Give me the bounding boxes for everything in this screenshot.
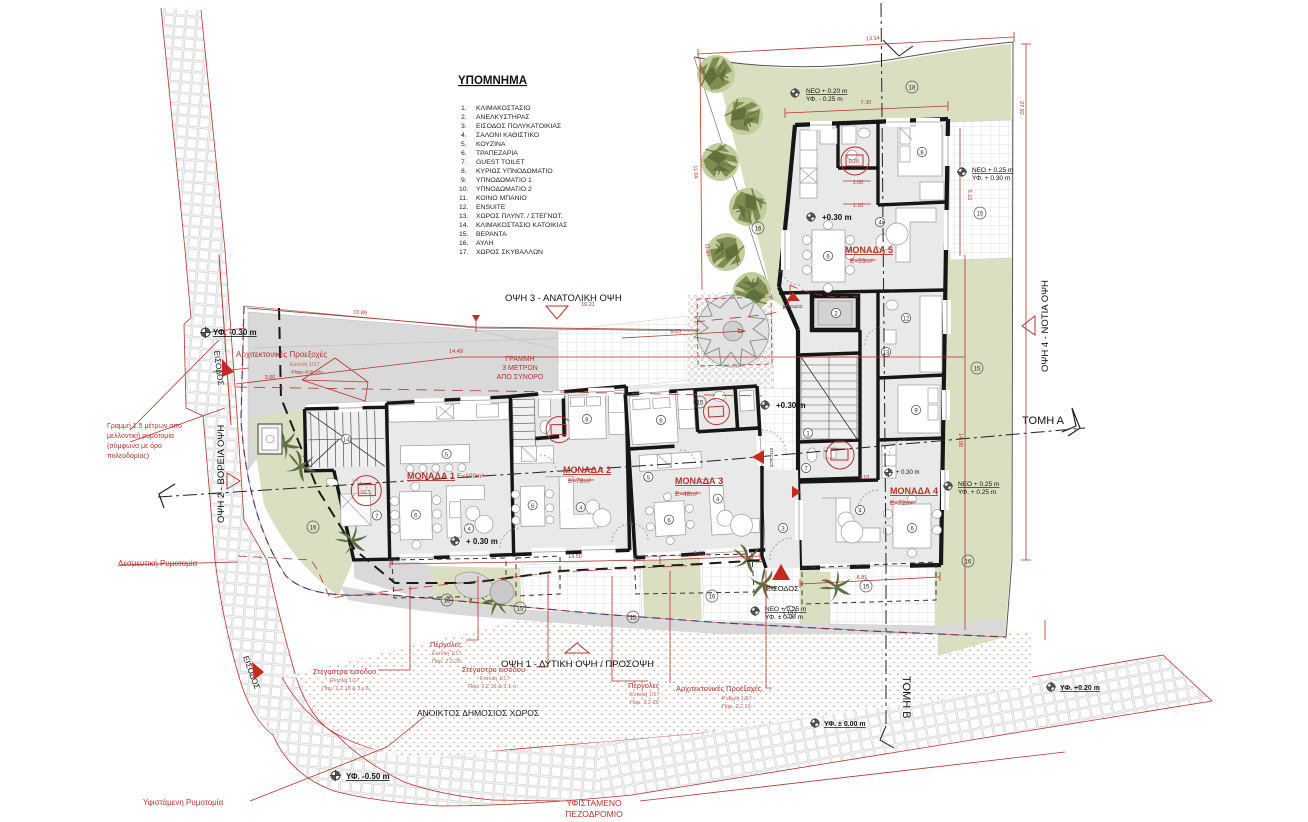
svg-text:ΧΩΡΟΣ ΠΛΥΝΤ. / ΣΤΕΓΝΩΤ.: ΧΩΡΟΣ ΠΛΥΝΤ. / ΣΤΕΓΝΩΤ. (476, 213, 563, 220)
svg-text:Δεσμευτική Ρυμοτομία: Δεσμευτική Ρυμοτομία (118, 559, 198, 568)
svg-text:ΝΕΟ + 0.25 m: ΝΕΟ + 0.25 m (958, 481, 999, 488)
svg-text:ΤΡΑΠΕΖΑΡΙΑ: ΤΡΑΠΕΖΑΡΙΑ (476, 150, 518, 157)
svg-text:1.: 1. (461, 105, 467, 112)
svg-text:Εντολή 1/17: Εντολή 1/17 (432, 650, 462, 657)
svg-text:Εντολή 1/17: Εντολή 1/17 (290, 361, 320, 368)
svg-text:ΚΟΥΖΙΝΑ: ΚΟΥΖΙΝΑ (476, 141, 506, 148)
svg-text:ΥΦ. ± 0.00 m: ΥΦ. ± 0.00 m (765, 614, 803, 621)
svg-text:+ 0.30 m: + 0.30 m (896, 470, 920, 476)
svg-text:ΕΙΣΟΔΟΣ: ΕΙΣΟΔΟΣ (783, 304, 803, 309)
svg-text:ΜΟΝΑΔΑ 1: ΜΟΝΑΔΑ 1 (407, 471, 455, 481)
svg-text:9.05: 9.05 (670, 329, 681, 336)
svg-text:(σύμφωνα με όρο: (σύμφωνα με όρο (107, 442, 162, 450)
svg-text:ΑΠΟ ΣΥΝΟΡΟ: ΑΠΟ ΣΥΝΟΡΟ (497, 374, 544, 381)
svg-text:14.08: 14.08 (957, 433, 963, 447)
svg-text:5.15: 5.15 (966, 190, 972, 201)
svg-text:17.: 17. (459, 249, 469, 256)
svg-text:Ρυθμ/η 1/17: Ρυθμ/η 1/17 (722, 696, 752, 702)
svg-text:ΟΨΗ 2 - ΒΟΡΕΙΑ ΟΨΗ: ΟΨΗ 2 - ΒΟΡΕΙΑ ΟΨΗ (216, 425, 227, 523)
svg-text:ΥΦ. +0.20 m: ΥΦ. +0.20 m (1060, 685, 1100, 692)
svg-text:12.: 12. (459, 204, 469, 211)
svg-text:Παρ. 2.2.19: Παρ. 2.2.19 (722, 704, 751, 710)
svg-text:ΝΕΟ + 0.25 m: ΝΕΟ + 0.25 m (972, 167, 1013, 174)
svg-text:Υφιστάμενη Ρυμοτομία: Υφιστάμενη Ρυμοτομία (143, 798, 224, 807)
svg-text:14.50: 14.50 (568, 554, 582, 560)
svg-text:ΒΕΡΑΝΤΑ: ΒΕΡΑΝΤΑ (476, 231, 507, 238)
svg-text:15: 15 (787, 611, 794, 617)
svg-text:ΜΟΝΑΔΑ 4: ΜΟΝΑΔΑ 4 (890, 486, 938, 496)
svg-text:Ε=78m²: Ε=78m² (568, 478, 592, 485)
svg-text:ΥΠΟΜΝΗΜΑ: ΥΠΟΜΝΗΜΑ (458, 75, 527, 87)
svg-text:ΕΙΣΟΔΟΣ: ΕΙΣΟΔΟΣ (766, 584, 799, 593)
svg-text:16: 16 (310, 526, 317, 532)
svg-text:18: 18 (909, 86, 916, 92)
svg-text:15: 15 (974, 367, 981, 373)
svg-text:Εντολή 1/17: Εντολή 1/17 (480, 675, 510, 682)
svg-text:ΕΙΣΟΔΟΣ ΠΟΛΥΚΑΤΟΙΚΙΑΣ: ΕΙΣΟΔΟΣ ΠΟΛΥΚΑΤΟΙΚΙΑΣ (476, 123, 561, 130)
svg-text:ΧΩΡΟΣ ΣΚΥΒΑΛΛΩΝ: ΧΩΡΟΣ ΣΚΥΒΑΛΛΩΝ (476, 249, 543, 256)
svg-text:3.: 3. (461, 123, 467, 130)
svg-text:7.: 7. (461, 159, 467, 166)
svg-text:4.: 4. (461, 132, 467, 139)
svg-text:μελλοντική ρυμοτομία: μελλοντική ρυμοτομία (107, 432, 174, 440)
svg-text:ΑΝΕΛΚΥΣΤΗΡΑΣ: ΑΝΕΛΚΥΣΤΗΡΑΣ (476, 114, 530, 121)
svg-text:ΝΕΟ + 0.20 m: ΝΕΟ + 0.20 m (806, 88, 847, 95)
svg-text:16: 16 (755, 227, 762, 233)
svg-text:15: 15 (977, 212, 984, 218)
svg-text:Πέργολες: Πέργολες (430, 640, 462, 649)
svg-text:11.07: 11.07 (704, 243, 711, 257)
svg-text:5.: 5. (461, 141, 467, 148)
svg-text:16: 16 (709, 595, 716, 601)
svg-text:ΑΥΛΗ: ΑΥΛΗ (476, 240, 494, 247)
svg-text:10.: 10. (459, 186, 469, 193)
svg-text:15: 15 (863, 585, 870, 591)
svg-text:Παρ. 2.2.16 & 3.1-α: Παρ. 2.2.16 & 3.1-α (468, 684, 517, 690)
svg-text:ΑΝΟΙΚΤΟΣ ΔΗΜΟΣΙΟΣ ΧΩΡΟΣ: ΑΝΟΙΚΤΟΣ ΔΗΜΟΣΙΟΣ ΧΩΡΟΣ (417, 708, 539, 718)
svg-text:+ 0.30 m: + 0.30 m (466, 537, 498, 546)
svg-text:ΥΦ. -0.30 m: ΥΦ. -0.30 m (213, 328, 257, 337)
svg-text:ΜΟΝΑΔΑ 5: ΜΟΝΑΔΑ 5 (845, 245, 893, 255)
svg-text:ΟΨΗ 4 - ΝΟΤΙΑ ΟΨΗ: ΟΨΗ 4 - ΝΟΤΙΑ ΟΨΗ (1040, 280, 1051, 372)
svg-text:ΚΥΡΙΩΣ ΥΠΝΟΔΩΜΑΤΙΟ: ΚΥΡΙΩΣ ΥΠΝΟΔΩΜΑΤΙΟ (476, 168, 553, 175)
svg-text:15: 15 (630, 616, 637, 622)
svg-text:Παρ. 2.2-20: Παρ. 2.2-20 (630, 700, 659, 706)
svg-text:Ε=53m²: Ε=53m² (850, 258, 874, 265)
svg-text:14.49: 14.49 (449, 349, 463, 355)
svg-text:9.: 9. (461, 177, 467, 184)
svg-text:ΥΦ. + 0.25 m: ΥΦ. + 0.25 m (958, 489, 996, 496)
svg-text:Αρχιτεκτονικές Προεξοχές: Αρχιτεκτονικές Προεξοχές (236, 350, 327, 359)
svg-text:14: 14 (343, 437, 350, 443)
svg-text:ΠΕΖΟΔΡΟΜΙΟ: ΠΕΖΟΔΡΟΜΙΟ (565, 809, 623, 819)
svg-text:Γραμμή 1.5 μέτρων απο: Γραμμή 1.5 μέτρων απο (107, 422, 182, 430)
svg-text:8.: 8. (461, 168, 467, 175)
svg-text:Στέγαστρα εισόδου: Στέγαστρα εισόδου (313, 667, 376, 676)
svg-text:0.25: 0.25 (849, 159, 859, 165)
svg-text:16: 16 (444, 599, 451, 605)
svg-text:Στέγαστρο εισόδου: Στέγαστρο εισόδου (462, 665, 525, 674)
svg-text:27.92: 27.92 (1018, 101, 1024, 115)
svg-text:ΥΦ. ± 0.00 m: ΥΦ. ± 0.00 m (824, 721, 866, 728)
svg-text:Εντολή 1/17: Εντολή 1/17 (630, 691, 660, 698)
svg-text:ΚΛΙΜΑΚΟΣΤΑΣΙΟ ΚΑΤΟΙΚΙΑΣ: ΚΛΙΜΑΚΟΣΤΑΣΙΟ ΚΑΤΟΙΚΙΑΣ (476, 222, 567, 229)
svg-text:ΥΦ. -0.50 m: ΥΦ. -0.50 m (346, 772, 390, 781)
svg-text:Παρ. 2.2-20: Παρ. 2.2-20 (432, 659, 461, 665)
svg-text:GUEST TOILET: GUEST TOILET (476, 159, 525, 166)
svg-text:πολεοδομίας): πολεοδομίας) (107, 452, 149, 460)
svg-text:16: 16 (965, 560, 972, 566)
svg-text:ΥΦ. - 0.25 m: ΥΦ. - 0.25 m (806, 96, 843, 103)
svg-text:1.10: 1.10 (859, 475, 870, 481)
svg-text:6.: 6. (461, 150, 467, 157)
svg-text:Ε=109m²: Ε=109m² (457, 473, 484, 480)
svg-text:ΚΟΙΝΟ ΜΠΑΝΙΟ: ΚΟΙΝΟ ΜΠΑΝΙΟ (476, 195, 527, 202)
svg-text:Ε=72m²: Ε=72m² (890, 500, 914, 507)
svg-text:ΥΦ. + 0.30 m: ΥΦ. + 0.30 m (972, 175, 1010, 182)
svg-text:14.: 14. (459, 222, 469, 229)
svg-text:ΚΛΙΜΑΚΟΣΤΑΣΙΟ: ΚΛΙΜΑΚΟΣΤΑΣΙΟ (476, 105, 531, 112)
svg-text:15.: 15. (459, 231, 469, 238)
svg-text:3 ΜΕΤΡΩΝ: 3 ΜΕΤΡΩΝ (502, 365, 538, 372)
svg-text:ΣΑΛΟΝΙ ΚΑΘΙΣΤΙΚΟ: ΣΑΛΟΝΙ ΚΑΘΙΣΤΙΚΟ (476, 132, 539, 139)
svg-text:ENSUITE: ENSUITE (476, 204, 506, 211)
svg-text:5.70: 5.70 (694, 551, 705, 557)
svg-text:13.14: 13.14 (866, 36, 880, 43)
svg-text:11.: 11. (459, 195, 468, 202)
svg-text:ΟΨΗ 3 - ΑΝΑΤΟΛΙΚΗ ΟΨΗ: ΟΨΗ 3 - ΑΝΑΤΟΛΙΚΗ ΟΨΗ (505, 293, 622, 304)
svg-text:Παρ. 2.2.18: Παρ. 2.2.18 (292, 370, 321, 376)
svg-text:ΜΟΝΑΔΑ 2: ΜΟΝΑΔΑ 2 (563, 465, 611, 475)
svg-text:2.: 2. (461, 114, 467, 121)
svg-text:+0.30 m: +0.30 m (776, 401, 806, 410)
svg-text:Αρχιτεκτονικές Προεξοχές: Αρχιτεκτονικές Προεξοχές (676, 684, 762, 693)
svg-text:13.: 13. (459, 213, 469, 220)
svg-text:ΥΦΙΣΤΑΜΕΝΟ: ΥΦΙΣΤΑΜΕΝΟ (566, 798, 622, 808)
svg-text:Παρ. 2.2.18 & 3 ε.δ.: Παρ. 2.2.18 & 3 ε.δ. (322, 686, 371, 692)
svg-text:ΓΡΑΜΜΗ: ΓΡΑΜΜΗ (505, 356, 534, 363)
svg-text:ΜΟΝΑΔΑ 3: ΜΟΝΑΔΑ 3 (675, 476, 723, 486)
svg-text:3.00: 3.00 (265, 375, 276, 381)
svg-text:Ε=48m²: Ε=48m² (675, 491, 699, 498)
svg-text:11.04: 11.04 (692, 165, 699, 179)
svg-text:15: 15 (697, 401, 704, 407)
svg-text:Πέργολες: Πέργολες (628, 681, 660, 690)
svg-text:16.: 16. (459, 240, 469, 247)
svg-text:15: 15 (517, 607, 524, 613)
svg-text:ΥΠΝΟΔΩΜΑΤΙΟ 1: ΥΠΝΟΔΩΜΑΤΙΟ 1 (476, 177, 532, 184)
svg-text:ΤΟΜΗ Α: ΤΟΜΗ Α (1022, 415, 1065, 427)
svg-text:+0.30 m: +0.30 m (822, 213, 852, 222)
svg-text:ΥΠΝΟΔΩΜΑΤΙΟ 2: ΥΠΝΟΔΩΜΑΤΙΟ 2 (476, 186, 532, 193)
svg-text:ΤΟΜΗ Β: ΤΟΜΗ Β (900, 676, 912, 719)
svg-text:7.30: 7.30 (861, 100, 872, 106)
svg-text:Εντολή 1/17: Εντολή 1/17 (330, 677, 360, 684)
svg-text:ΕΙΣΟΔΟΣ: ΕΙΣΟΔΟΣ (769, 448, 774, 468)
svg-text:10.89: 10.89 (353, 309, 367, 316)
svg-text:12: 12 (903, 317, 910, 323)
